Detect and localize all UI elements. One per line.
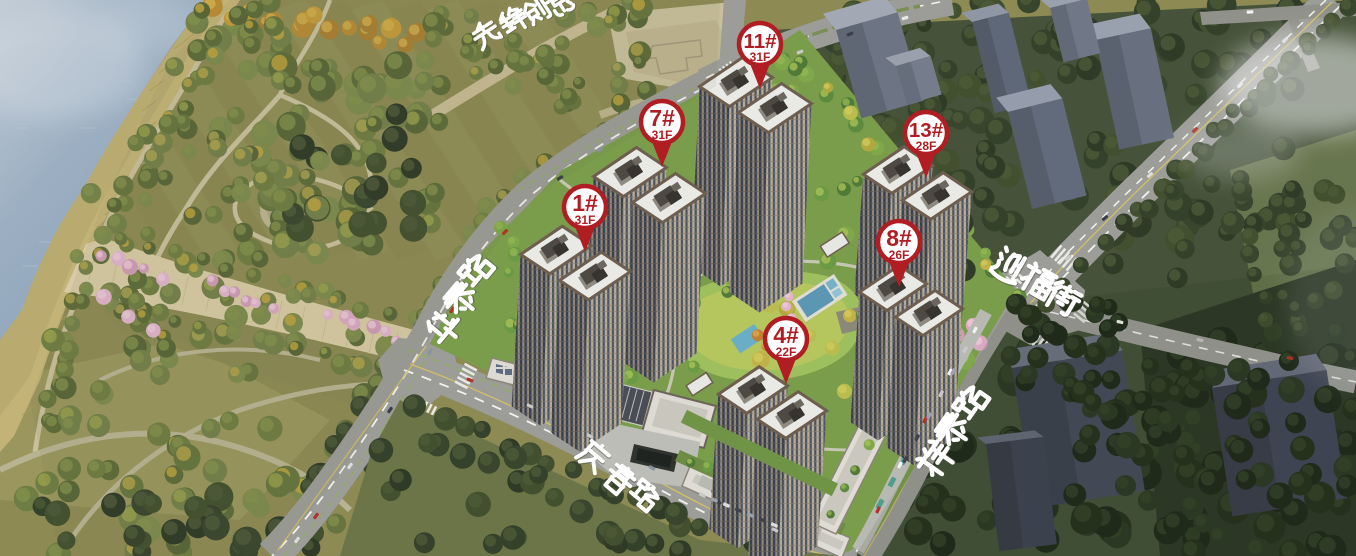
svg-text:26F: 26F [889,248,910,262]
svg-text:31F: 31F [652,128,673,142]
svg-text:31F: 31F [575,213,596,227]
svg-text:28F: 28F [916,139,937,153]
svg-text:22F: 22F [776,345,797,359]
svg-text:31F: 31F [750,50,771,64]
